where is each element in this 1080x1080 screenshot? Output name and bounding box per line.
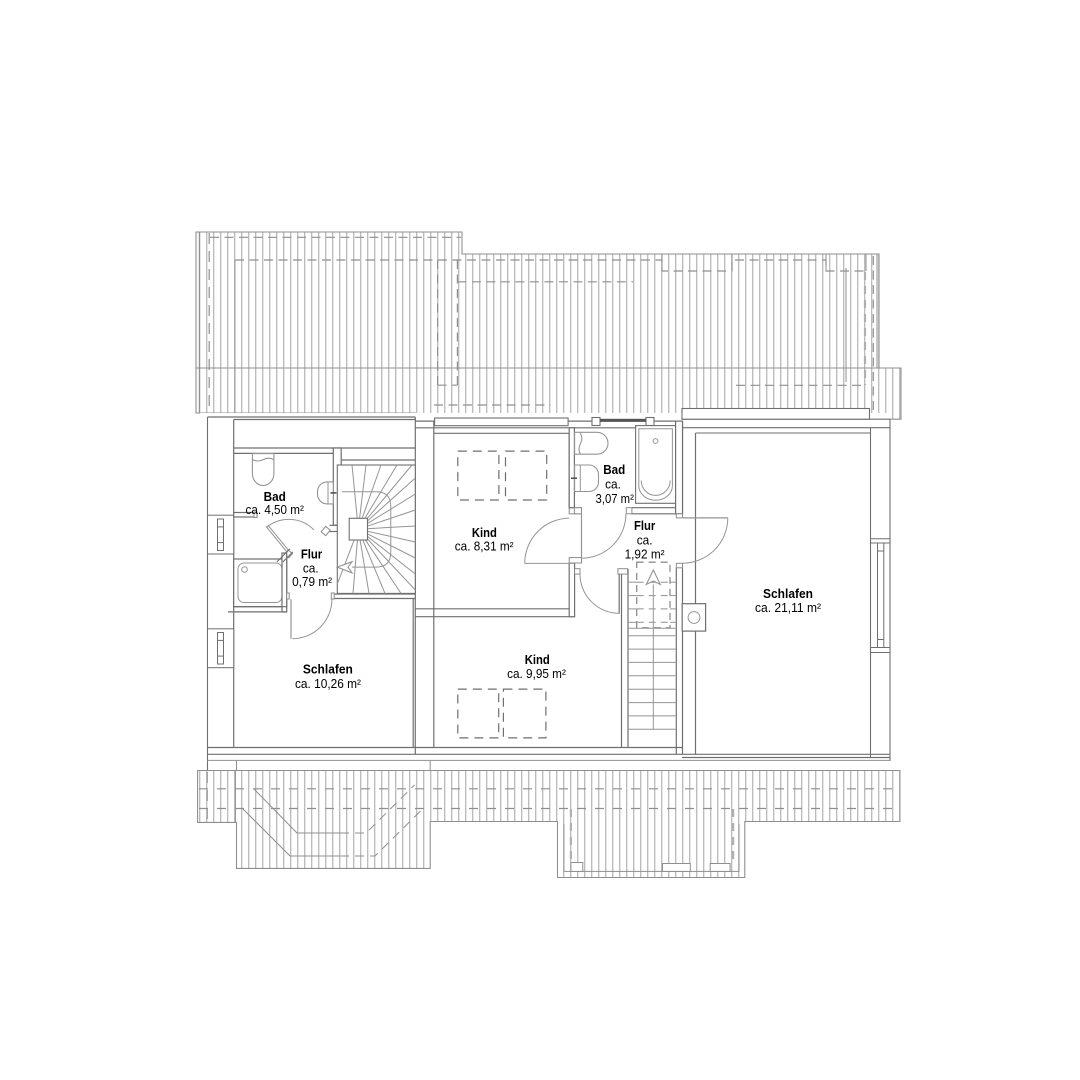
svg-text:Flur: Flur (634, 519, 655, 533)
svg-text:Bad: Bad (264, 490, 286, 504)
svg-text:ca. 10,26 m²: ca. 10,26 m² (295, 677, 361, 691)
svg-text:ca. 9,95 m²: ca. 9,95 m² (507, 667, 566, 681)
svg-text:3,07 m²: 3,07 m² (596, 492, 634, 506)
svg-text:ca. 4,50 m²: ca. 4,50 m² (246, 503, 304, 517)
svg-text:ca. 21,11 m²: ca. 21,11 m² (755, 601, 821, 615)
svg-text:Schlafen: Schlafen (763, 587, 813, 601)
svg-text:Flur: Flur (301, 548, 322, 562)
svg-text:Bad: Bad (603, 463, 625, 477)
svg-text:Kind: Kind (472, 526, 497, 540)
svg-text:Schlafen: Schlafen (303, 662, 353, 676)
svg-text:ca.: ca. (605, 477, 621, 491)
svg-text:Kind: Kind (525, 653, 550, 667)
svg-text:ca. 8,31 m²: ca. 8,31 m² (455, 540, 514, 554)
svg-text:1,92 m²: 1,92 m² (625, 548, 665, 562)
svg-text:0,79 m²: 0,79 m² (292, 575, 332, 589)
svg-text:ca.: ca. (637, 533, 653, 547)
svg-text:ca.: ca. (303, 562, 319, 576)
